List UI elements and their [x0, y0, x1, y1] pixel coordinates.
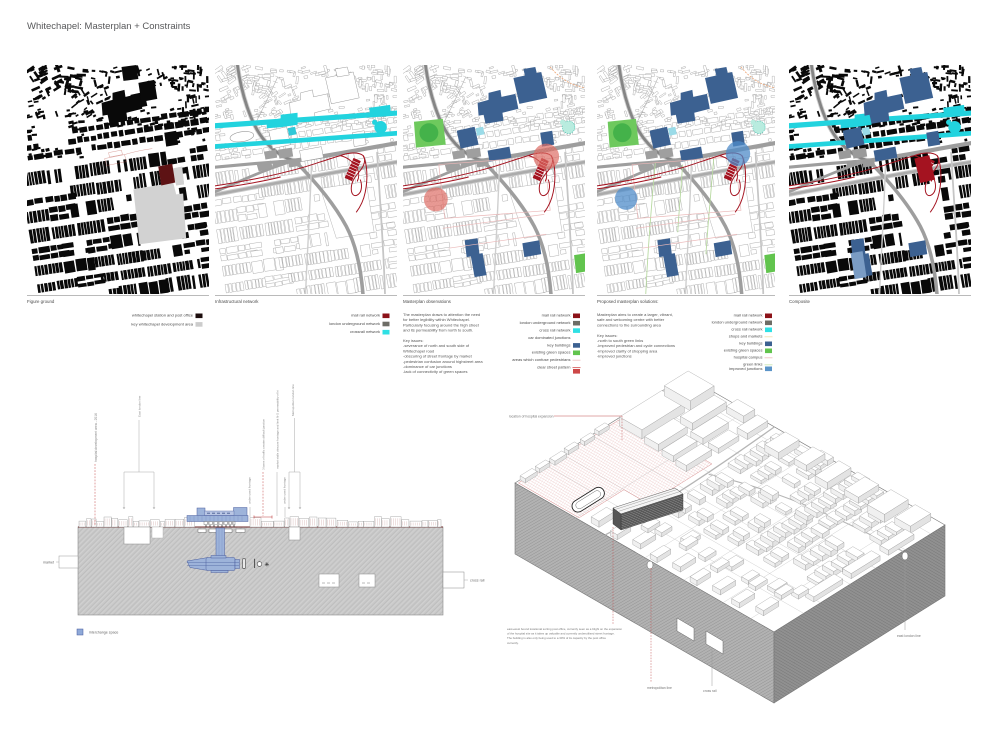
- svg-text:existing green spaces: existing green spaces: [724, 348, 763, 353]
- svg-text:Masterplan observations: Masterplan observations: [403, 299, 452, 304]
- svg-text:Composite: Composite: [789, 299, 811, 304]
- svg-text:shops and markets: shops and markets: [729, 334, 763, 339]
- svg-text:-lack of connectivity of green: -lack of connectivity of green spaces: [403, 369, 467, 374]
- svg-text:hospital campus: hospital campus: [734, 355, 763, 360]
- svg-text:3 lanes of traffic creates dif: 3 lanes of traffic creates difficult jun…: [261, 418, 265, 470]
- svg-text:under used frontage: under used frontage: [248, 477, 252, 504]
- svg-text:crossrail network: crossrail network: [350, 329, 380, 334]
- svg-text:mail rail network: mail rail network: [351, 313, 380, 318]
- svg-text:The building is also only bein: The building is also only being used to …: [507, 636, 606, 640]
- svg-text:mail rail network: mail rail network: [542, 313, 571, 318]
- svg-text:clear street pattern: clear street pattern: [537, 365, 570, 370]
- svg-text:cross rail network: cross rail network: [731, 327, 762, 332]
- svg-text:areas which confuse pedestrian: areas which confuse pedestrians: [512, 357, 570, 362]
- svg-text:car dominated junctions: car dominated junctions: [528, 335, 570, 340]
- svg-text:Metropolitan london line: Metropolitan london line: [291, 384, 295, 416]
- svg-text:connections to the surrounding: connections to the surrounding area: [597, 322, 662, 327]
- svg-text:Infrastructural network: Infrastructural network: [215, 299, 259, 304]
- svg-text:interchange space: interchange space: [89, 631, 118, 635]
- svg-text:east london line: east london line: [897, 634, 921, 638]
- svg-text:improved junctions: improved junctions: [729, 366, 762, 371]
- svg-text:under used frontage: under used frontage: [283, 477, 287, 504]
- svg-text:currently.: currently.: [507, 641, 519, 645]
- svg-text:East london line: East london line: [138, 395, 142, 417]
- svg-text:existing green spaces: existing green spaces: [532, 350, 571, 355]
- svg-text:mail rail network: mail rail network: [734, 313, 763, 318]
- svg-text:Figure ground: Figure ground: [27, 299, 55, 304]
- svg-text:hospital development area - 20: hospital development area - 2016: [94, 413, 98, 462]
- svg-text:market stalls obscure frontage: market stalls obscure frontage and limit…: [276, 390, 280, 469]
- svg-text:london underground network: london underground network: [329, 321, 380, 326]
- svg-text:location of hospital expansion: location of hospital expansion: [509, 415, 554, 419]
- svg-text:key whitechapel development ar: key whitechapel development area: [131, 321, 193, 326]
- svg-text:cross rail: cross rail: [703, 689, 717, 693]
- svg-text:of the hospital site as it tak: of the hospital site as it takes up valu…: [507, 632, 615, 636]
- svg-text:cross rail: cross rail: [470, 579, 485, 583]
- svg-text:Whitechapel: Masterplan + Cons: Whitechapel: Masterplan + Constraints: [27, 21, 191, 32]
- svg-text:Proposed masterplan solutions:: Proposed masterplan solutions:: [597, 299, 659, 304]
- svg-text:london underground network: london underground network: [712, 320, 763, 325]
- svg-text:east+west bound locational sor: east+west bound locational sorting post …: [507, 627, 622, 631]
- svg-text:-improved junctions: -improved junctions: [597, 354, 632, 359]
- svg-text:cross rail network: cross rail network: [539, 328, 570, 333]
- svg-text:key buildings: key buildings: [547, 342, 570, 347]
- svg-text:metropolitan line: metropolitan line: [647, 686, 672, 690]
- svg-text:market: market: [43, 561, 54, 565]
- svg-text:london underground network: london underground network: [520, 320, 571, 325]
- svg-text:whitechapel station and post o: whitechapel station and post office: [132, 313, 194, 318]
- svg-text:and its permeability from nort: and its permeability from north to south…: [403, 328, 473, 333]
- svg-text:key buildings: key buildings: [739, 341, 762, 346]
